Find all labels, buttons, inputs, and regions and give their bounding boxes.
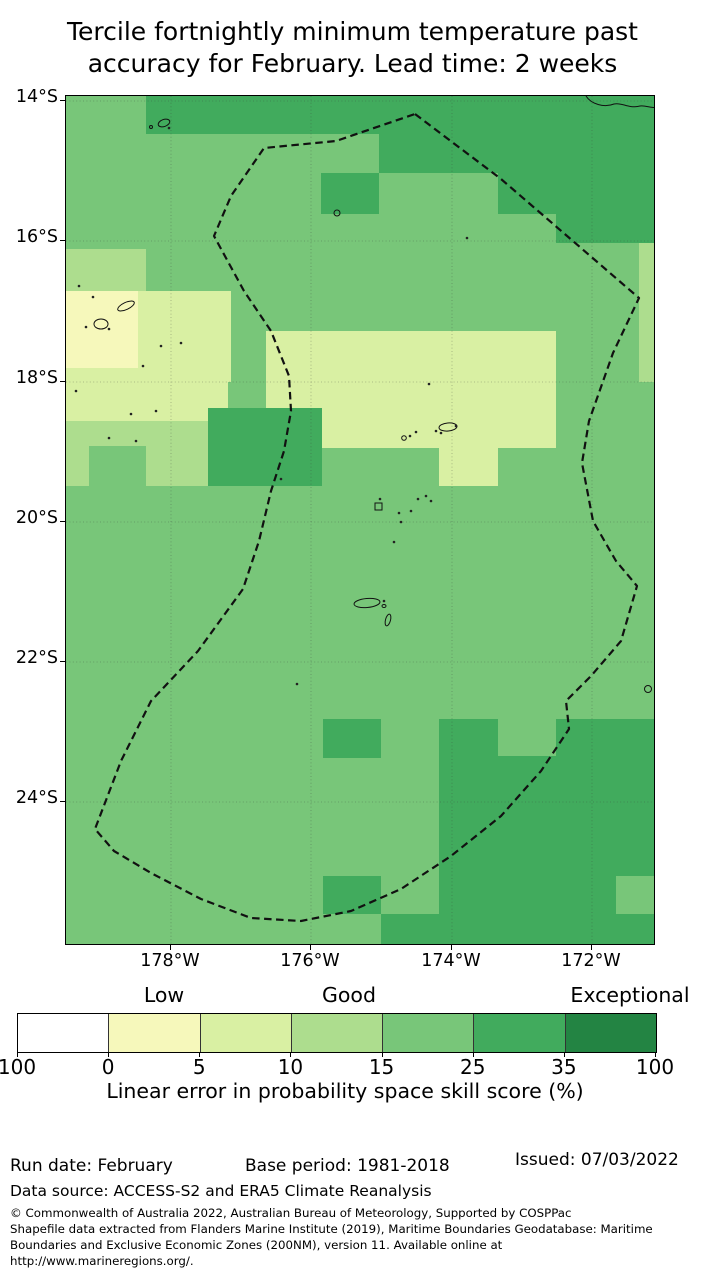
colorbar-tick-mark [473,1052,474,1057]
longitude-tick-mark [310,945,311,950]
base-period-text: Base period: 1981-2018 [245,1156,450,1176]
island-dot [435,430,438,433]
longitude-tick-label: 178°W [130,951,210,971]
colorbar-segment [474,1014,565,1052]
island-dot [417,498,420,501]
island-outline [150,126,153,129]
longitude-tick-label: 174°W [411,951,491,971]
island-outline [645,686,652,693]
longitude-tick-label: 172°W [551,951,631,971]
island-outline [375,503,382,510]
island-dot [130,413,133,416]
longitude-tick-label: 176°W [270,951,350,971]
longitude-tick-mark [591,945,592,950]
latitude-tick-label: 16°S [0,227,58,247]
island-outline [384,614,392,627]
island-outline [94,319,108,329]
map-panel [65,95,655,945]
colorbar-tick-mark [108,1052,109,1057]
island-dot [155,410,158,413]
colorbar-segment [201,1014,292,1052]
island-dot [142,365,145,368]
colorbar-tick-label: 10 [258,1055,322,1079]
island-dot [425,495,428,498]
latitude-tick-mark [60,381,65,382]
data-source-text: Data source: ACCESS-S2 and ERA5 Climate … [10,1182,432,1200]
colorbar-tick-mark [564,1052,565,1057]
copyright-block: © Commonwealth of Australia 2022, Austra… [10,1205,653,1269]
latitude-tick-mark [60,521,65,522]
map-overlay [66,96,654,944]
colorbar-tick-mark [655,1052,656,1057]
island-dot [180,342,183,345]
island-dot [135,440,138,443]
island-outline [439,422,458,432]
title-line-1: Tercile fortnightly minimum temperature … [0,16,705,48]
colorbar-tick-label: 15 [350,1055,414,1079]
colorbar-tick-mark [290,1052,291,1057]
island-dot [409,435,412,438]
colorbar-tick-mark [199,1052,200,1057]
island-dot [400,521,403,524]
island-dot [393,541,396,544]
colorbar-tick-mark [17,1052,18,1057]
latitude-tick-label: 24°S [0,788,58,808]
island-outline [382,605,386,608]
issued-date-text: Issued: 07/03/2022 [515,1150,679,1170]
latitude-tick-label: 20°S [0,508,58,528]
island-dot [75,390,78,393]
colorbar-tick-mark [382,1052,383,1057]
chart-title: Tercile fortnightly minimum temperature … [0,16,705,79]
island-dot [440,432,443,435]
island-dot [428,383,431,386]
colorbar-tick-label: 5 [167,1055,231,1079]
island-dot [92,296,95,299]
coastline [586,96,654,108]
colorbar-segment [292,1014,383,1052]
island-outline [354,597,381,608]
island-dot [379,498,382,501]
colorbar-category-label: Good [229,983,469,1007]
island-dot [455,425,458,428]
latitude-tick-mark [60,240,65,241]
island-dot [78,285,81,288]
latitude-tick-label: 18°S [0,368,58,388]
latitude-tick-label: 22°S [0,648,58,668]
colorbar-segment [383,1014,474,1052]
island-dot [415,431,418,434]
latitude-tick-mark [60,100,65,101]
island-dot [280,478,283,481]
copyright-line-4: http://www.marineregions.org/. [10,1253,653,1269]
latitude-tick-label: 14°S [0,87,58,107]
title-line-2: accuracy for February. Lead time: 2 week… [0,48,705,80]
island-dot [398,512,401,515]
colorbar-tick-label: 100 [623,1055,687,1079]
island-dot [466,237,469,240]
colorbar-segment [109,1014,200,1052]
colorbar-tick-label: 35 [532,1055,596,1079]
island-outline [402,436,407,441]
island-dot [430,500,433,503]
colorbar [17,1013,657,1053]
longitude-tick-mark [170,945,171,950]
copyright-line-1: © Commonwealth of Australia 2022, Austra… [10,1205,653,1221]
colorbar-tick-label: 25 [441,1055,505,1079]
island-dot [85,326,88,329]
copyright-line-2: Shapefile data extracted from Flanders M… [10,1221,653,1237]
colorbar-tick-label: 100 [0,1055,49,1079]
figure: Tercile fortnightly minimum temperature … [0,0,705,1275]
longitude-tick-mark [451,945,452,950]
copyright-line-3: Boundaries and Exclusive Economic Zones … [10,1237,653,1253]
island-outline [116,299,135,313]
island-dot [383,600,386,603]
island-dot [410,510,413,513]
latitude-tick-mark [60,801,65,802]
colorbar-tick-label: 0 [76,1055,140,1079]
island-dot [108,437,111,440]
island-dot [160,345,163,348]
latitude-tick-mark [60,661,65,662]
colorbar-category-label: Exceptional [510,983,705,1007]
colorbar-axis-label: Linear error in probability space skill … [0,1079,690,1103]
island-dot [108,328,111,331]
island-outline [334,210,340,216]
island-dot [296,683,299,686]
colorbar-segment [566,1014,656,1052]
eez-boundary-dashed [95,114,639,921]
island-dot [168,127,171,130]
colorbar-segment [18,1014,109,1052]
run-date-text: Run date: February [10,1156,173,1176]
